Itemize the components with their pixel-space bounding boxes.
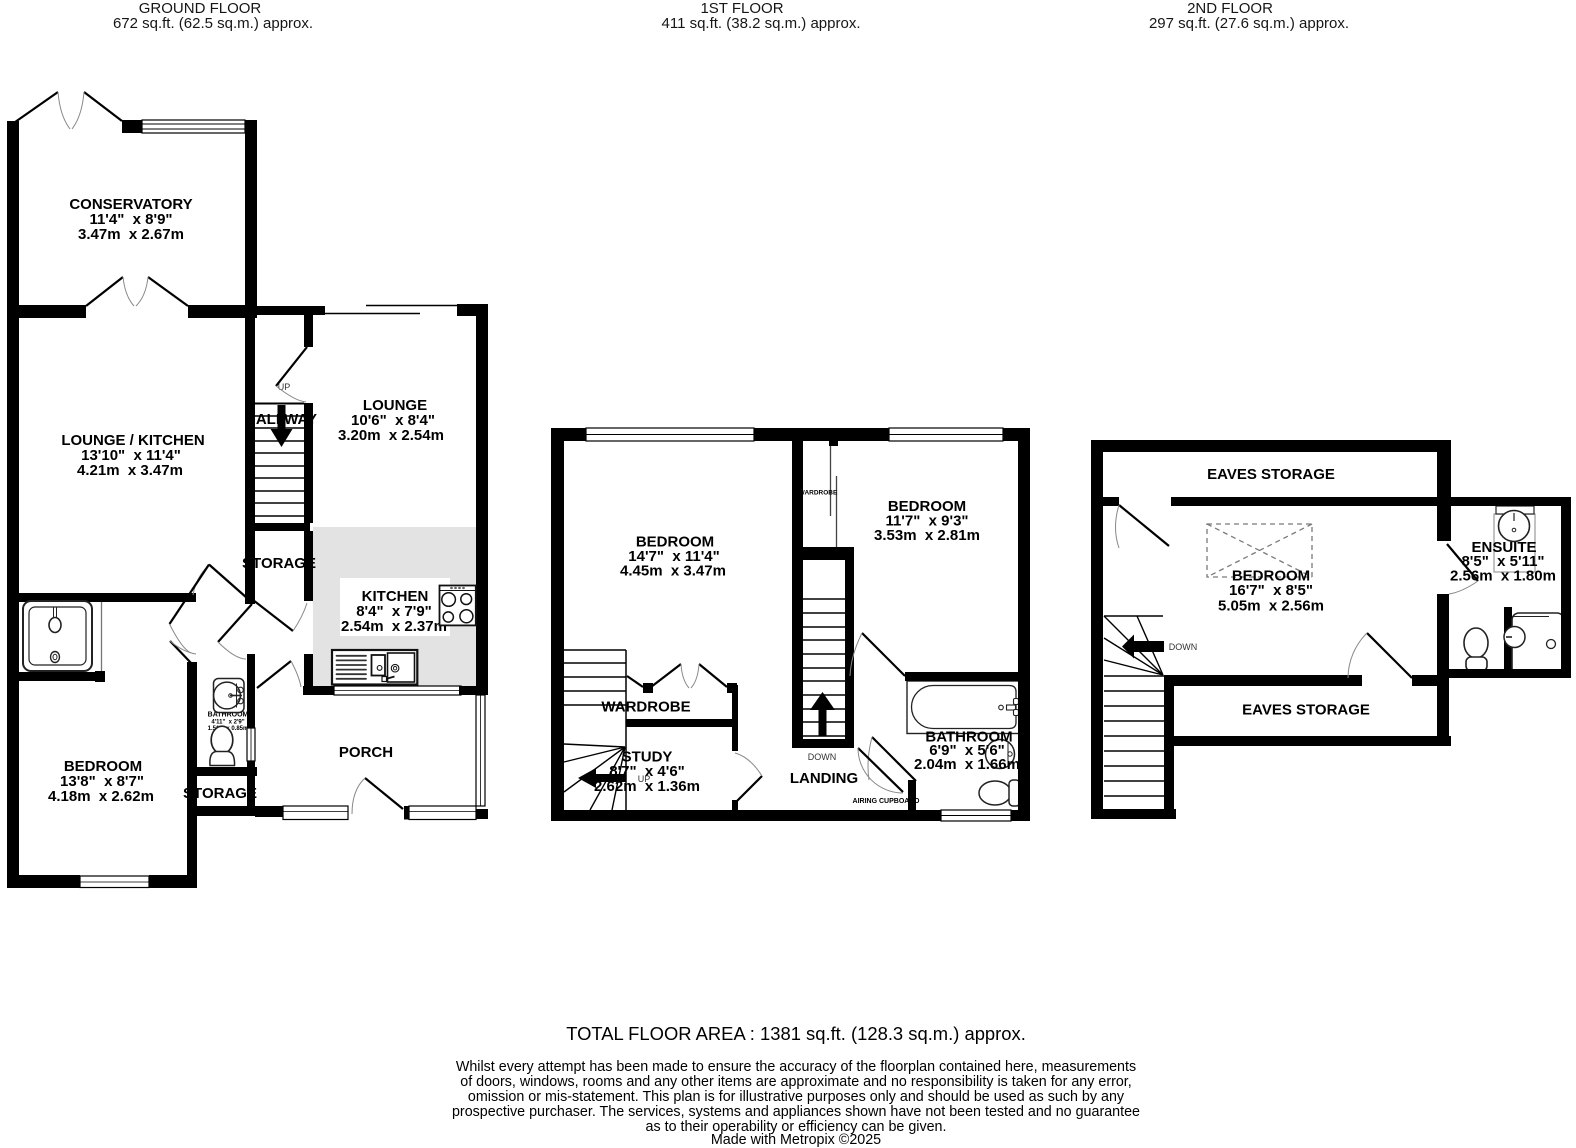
svg-text:5.05m x 2.56m: 5.05m x 2.56m — [1218, 598, 1324, 615]
svg-text:WARDROBE: WARDROBE — [799, 490, 838, 497]
svg-text:4'11" x 2'9": 4'11" x 2'9" — [211, 720, 244, 726]
svg-text:2.56m x 1.80m: 2.56m x 1.80m — [1450, 568, 1556, 585]
svg-text:3.53m x 2.81m: 3.53m x 2.81m — [874, 527, 980, 544]
svg-text:UP: UP — [638, 774, 651, 784]
svg-text:2.04m x 1.66m: 2.04m x 1.66m — [914, 756, 1020, 773]
svg-text:WARDROBE: WARDROBE — [601, 699, 690, 716]
svg-text:PORCH: PORCH — [339, 744, 393, 761]
svg-text:omission or mis-statement. Thi: omission or mis-statement. This plan is … — [468, 1089, 1125, 1105]
svg-text:DOWN: DOWN — [808, 752, 837, 762]
svg-text:LANDING: LANDING — [790, 770, 858, 787]
svg-text:4.45m x 3.47m: 4.45m x 3.47m — [620, 563, 726, 580]
svg-text:prospective purchaser. The ser: prospective purchaser. The services, sys… — [452, 1104, 1140, 1120]
svg-text:EAVES STORAGE: EAVES STORAGE — [1242, 702, 1370, 719]
svg-text:16'7" x 8'5": 16'7" x 8'5" — [1229, 582, 1313, 599]
svg-text:2.54m x 2.37m: 2.54m x 2.37m — [341, 618, 447, 635]
svg-text:UP: UP — [278, 382, 291, 392]
svg-text:3.47m x 2.67m: 3.47m x 2.67m — [78, 226, 184, 243]
svg-text:TOTAL FLOOR AREA : 1381 sq.ft.: TOTAL FLOOR AREA : 1381 sq.ft. (128.3 sq… — [566, 1023, 1026, 1044]
svg-text:Made with Metropix ©2025: Made with Metropix ©2025 — [711, 1132, 881, 1148]
svg-text:411 sq.ft. (38.2 sq.m.) approx: 411 sq.ft. (38.2 sq.m.) approx. — [662, 15, 861, 32]
svg-text:EAVES STORAGE: EAVES STORAGE — [1207, 466, 1335, 483]
svg-text:of doors, windows, rooms and a: of doors, windows, rooms and any other i… — [460, 1074, 1132, 1090]
svg-text:DOWN: DOWN — [1169, 642, 1198, 652]
svg-text:4.21m x 3.47m: 4.21m x 3.47m — [77, 462, 183, 479]
svg-text:672 sq.ft. (62.5 sq.m.) approx: 672 sq.ft. (62.5 sq.m.) approx. — [113, 15, 313, 32]
svg-text:4.18m x 2.62m: 4.18m x 2.62m — [48, 788, 154, 805]
svg-text:297 sq.ft. (27.6 sq.m.) approx: 297 sq.ft. (27.6 sq.m.) approx. — [1149, 15, 1349, 32]
svg-text:Whilst every attempt has been: Whilst every attempt has been made to en… — [456, 1059, 1136, 1075]
svg-text:3.20m x 2.54m: 3.20m x 2.54m — [338, 427, 444, 444]
